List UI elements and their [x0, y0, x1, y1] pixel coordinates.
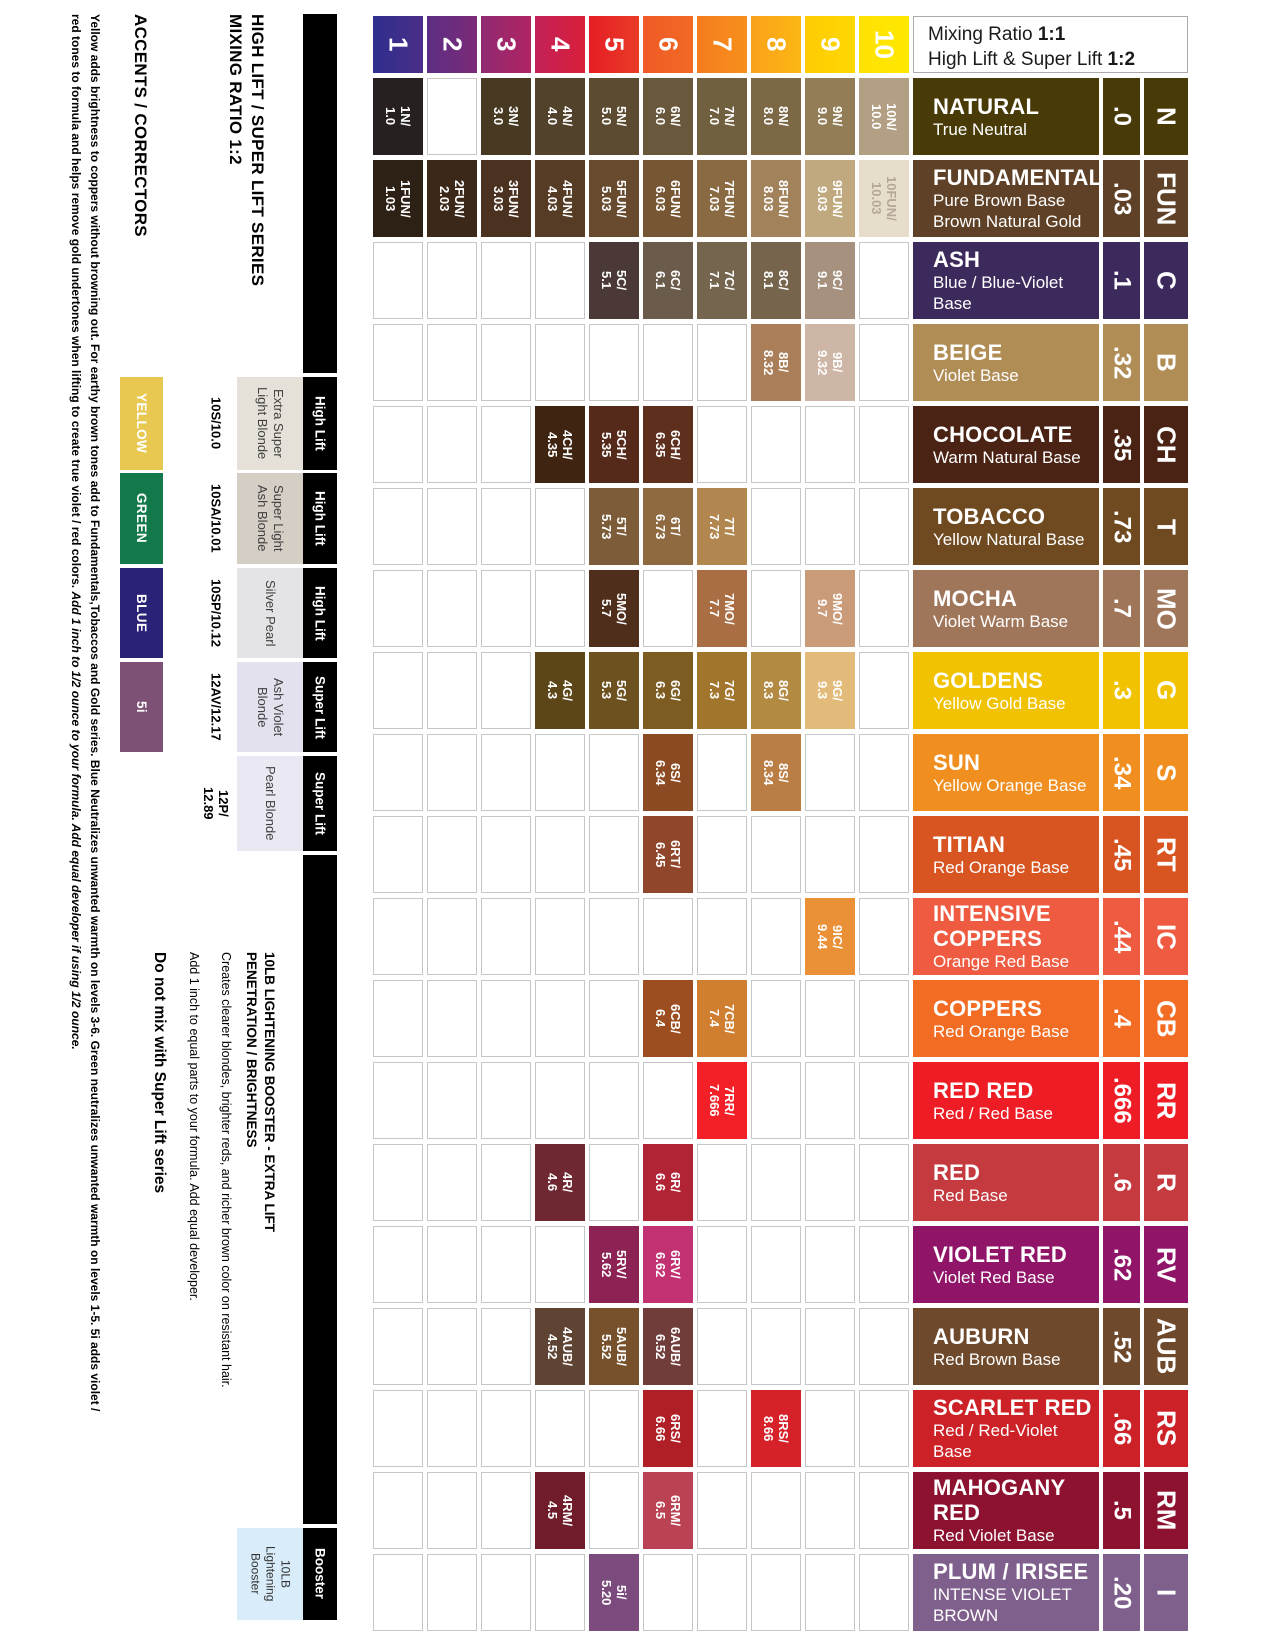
- empty-cell-s-4: [535, 734, 585, 811]
- level-header-8: 8: [751, 16, 801, 73]
- empty-cell-ch-7: [697, 406, 747, 483]
- family-letter-rv: RV: [1144, 1226, 1188, 1303]
- swatch-cell-4CH: 4CH/4.35: [535, 406, 585, 483]
- accent-swatch-5i: 5i: [120, 662, 163, 752]
- swatch-code-5T: 5T/5.73: [599, 514, 629, 539]
- empty-cell-rt-10: [859, 816, 909, 893]
- family-letter-text-i: I: [1151, 1589, 1182, 1596]
- level-header-10: 10: [859, 16, 909, 73]
- product-code-text-12P: 12P/12.89: [201, 787, 231, 820]
- empty-cell-ic-10: [859, 898, 909, 975]
- footnote-line-2: red tones to formula and helps remove go…: [66, 14, 85, 1639]
- empty-cell-rt-3: [481, 816, 531, 893]
- family-code-r: .6: [1103, 1144, 1140, 1221]
- swatch-code-10N: 10N/10.0: [869, 103, 899, 130]
- empty-cell-rt-2: [427, 816, 477, 893]
- family-code-text-fun: .03: [1108, 182, 1136, 215]
- family-letter-text-c: C: [1151, 271, 1182, 290]
- empty-cell-aub-7: [697, 1308, 747, 1385]
- swatch-cell-6AUB: 6AUB/6.52: [643, 1308, 693, 1385]
- swatch-code-4N: 4N/4.0: [545, 106, 575, 126]
- empty-cell-b-7: [697, 324, 747, 401]
- accent-label-5i: 5i: [134, 701, 149, 713]
- level-number-5: 5: [599, 37, 630, 51]
- swatch-code-6RM: 6RM/6.5: [653, 1495, 683, 1526]
- swatch-cell-6G: 6G/6.3: [643, 652, 693, 729]
- empty-cell-r-10: [859, 1144, 909, 1221]
- family-code-ic: .44: [1103, 898, 1140, 975]
- empty-cell-mo-1: [373, 570, 423, 647]
- family-letter-text-ch: CH: [1151, 426, 1182, 464]
- series-heading-line-2: MIXING RATIO 1:2: [224, 14, 246, 286]
- product-code-text-10SA1001: 10SA/10.01: [209, 484, 224, 553]
- product-name-10SA1001: Super LightAsh Blonde: [254, 485, 286, 552]
- empty-cell-rs-4: [535, 1390, 585, 1467]
- swatch-cell-7FUN: 7FUN/7.03: [697, 160, 747, 237]
- family-band-g: GOLDENSYellow Gold Base: [913, 652, 1099, 729]
- swatch-code-6T: 6T/6.73: [653, 514, 683, 539]
- empty-cell-r-9: [805, 1144, 855, 1221]
- product-name-10SP1012: Silver Pearl: [262, 580, 278, 646]
- empty-cell-r-7: [697, 1144, 747, 1221]
- family-letter-g: G: [1144, 652, 1188, 729]
- empty-cell-t-3: [481, 488, 531, 565]
- empty-cell-rm-3: [481, 1472, 531, 1549]
- empty-cell-b-3: [481, 324, 531, 401]
- booster-box-line-2: Lightening: [263, 1546, 278, 1601]
- empty-cell-rv-7: [697, 1226, 747, 1303]
- empty-cell-i-1: [373, 1554, 423, 1631]
- family-band-rm: MAHOGANY REDRed Violet Base: [913, 1472, 1099, 1549]
- swatch-cell-10FUN: 10FUN/10.03: [859, 160, 909, 237]
- family-code-rm: .5: [1103, 1472, 1140, 1549]
- high-lift-series-heading: HIGH LIFT / SUPER LIFT SERIES MIXING RAT…: [224, 14, 270, 344]
- lift-bar-super-lift-5: Super Lift: [303, 756, 337, 851]
- family-letter-text-aub: AUB: [1151, 1318, 1182, 1374]
- empty-cell-rv-2: [427, 1226, 477, 1303]
- family-code-rv: .62: [1103, 1226, 1140, 1303]
- swatch-code-6RS: 6RS/6.66: [653, 1414, 683, 1443]
- empty-cell-mo-8: [751, 570, 801, 647]
- family-letter-aub: AUB: [1144, 1308, 1188, 1385]
- family-band-cb: COPPERSRed Orange Base: [913, 980, 1099, 1057]
- empty-cell-i-6: [643, 1554, 693, 1631]
- family-letter-text-rv: RV: [1151, 1247, 1182, 1283]
- swatch-cell-6N: 6N/6.0: [643, 78, 693, 155]
- swatch-code-5N: 5N/5.0: [599, 106, 629, 126]
- empty-cell-b-2: [427, 324, 477, 401]
- family-code-c: .1: [1103, 242, 1140, 319]
- empty-cell-rr-5: [589, 1062, 639, 1139]
- family-code-text-cb: .4: [1108, 1008, 1136, 1028]
- empty-cell-ch-3: [481, 406, 531, 483]
- empty-cell-ic-2: [427, 898, 477, 975]
- level-number-4: 4: [545, 37, 576, 51]
- swatch-code-8C: 8C/8.1: [761, 270, 791, 290]
- level-number-8: 8: [761, 37, 792, 51]
- empty-cell-ic-6: [643, 898, 693, 975]
- swatch-code-8N: 8N/8.0: [761, 106, 791, 126]
- family-band-s: SUNYellow Orange Base: [913, 734, 1099, 811]
- family-letter-t: T: [1144, 488, 1188, 565]
- swatch-code-7RR: 7RR/7.666: [707, 1084, 737, 1117]
- family-letter-text-r: R: [1151, 1173, 1182, 1192]
- family-band-mo: MOCHAViolet Warm Base: [913, 570, 1099, 647]
- swatch-code-4AUB: 4AUB/4.52: [545, 1327, 575, 1366]
- empty-cell-rt-4: [535, 816, 585, 893]
- swatch-code-6FUN: 6FUN/6.03: [653, 180, 683, 218]
- family-code-text-rv: .62: [1108, 1248, 1136, 1281]
- swatch-cell-9C: 9C/9.1: [805, 242, 855, 319]
- family-code-fun: .03: [1103, 160, 1140, 237]
- empty-cell-cb-8: [751, 980, 801, 1057]
- swatch-code-9FUN: 9FUN/9.03: [815, 180, 845, 218]
- empty-cell-cb-5: [589, 980, 639, 1057]
- family-code-text-rm: .5: [1108, 1500, 1136, 1520]
- empty-cell-rr-4: [535, 1062, 585, 1139]
- level-number-1: 1: [383, 37, 414, 51]
- family-letter-n: N: [1144, 78, 1188, 155]
- empty-cell-ic-5: [589, 898, 639, 975]
- product-code-text-10S100: 10S/10.0: [209, 397, 224, 449]
- swatch-code-6AUB: 6AUB/6.52: [653, 1327, 683, 1366]
- swatch-code-6R: 6R/6.6: [653, 1172, 683, 1192]
- swatch-cell-1N: 1N/1.0: [373, 78, 423, 155]
- empty-cell-ch-1: [373, 406, 423, 483]
- swatch-cell-8B: 8B/8.32: [751, 324, 801, 401]
- swatch-code-8G: 8G/8.3: [761, 680, 791, 701]
- swatch-code-7FUN: 7FUN/7.03: [707, 180, 737, 218]
- family-letter-text-mo: MO: [1151, 588, 1182, 630]
- empty-cell-cb-10: [859, 980, 909, 1057]
- family-letter-text-cb: CB: [1151, 1000, 1182, 1038]
- swatch-code-6RT: 6RT/6.45: [653, 840, 683, 868]
- empty-cell-s-9: [805, 734, 855, 811]
- family-letter-i: I: [1144, 1554, 1188, 1631]
- empty-cell-mo-3: [481, 570, 531, 647]
- empty-cell-ic-3: [481, 898, 531, 975]
- family-code-text-rs: .66: [1108, 1412, 1136, 1445]
- family-code-text-c: .1: [1108, 270, 1136, 290]
- family-letter-text-rm: RM: [1151, 1490, 1182, 1530]
- swatch-cell-6R: 6R/6.6: [643, 1144, 693, 1221]
- swatch-cell-8N: 8N/8.0: [751, 78, 801, 155]
- family-letter-fun: FUN: [1144, 160, 1188, 237]
- empty-cell-rs-7: [697, 1390, 747, 1467]
- family-letter-ch: CH: [1144, 406, 1188, 483]
- level-header-1: 1: [373, 16, 423, 73]
- empty-cell-rv-1: [373, 1226, 423, 1303]
- swatch-cell-4AUB: 4AUB/4.52: [535, 1308, 585, 1385]
- empty-cell-cb-9: [805, 980, 855, 1057]
- empty-cell-rm-1: [373, 1472, 423, 1549]
- swatch-code-4CH: 4CH/4.35: [545, 430, 575, 460]
- family-band-n: NATURALTrue Neutral: [913, 78, 1099, 155]
- swatch-cell-4N: 4N/4.0: [535, 78, 585, 155]
- family-code-text-i: .20: [1108, 1576, 1136, 1609]
- product-name-12P: Pearl Blonde: [262, 766, 278, 840]
- family-code-aub: .52: [1103, 1308, 1140, 1385]
- lift-bar-booster-7: Booster: [303, 1528, 337, 1620]
- swatch-code-7N: 7N/7.0: [707, 106, 737, 126]
- swatch-cell-9MO: 9MO/9.7: [805, 570, 855, 647]
- swatch-code-2FUN: 2FUN/2.03: [437, 180, 467, 218]
- swatch-code-9N: 9N/9.0: [815, 106, 845, 126]
- swatch-code-3N: 3N/3.0: [491, 106, 521, 126]
- family-code-i: .20: [1103, 1554, 1140, 1631]
- family-code-text-rr: .666: [1108, 1077, 1136, 1124]
- swatch-cell-5C: 5C/5.1: [589, 242, 639, 319]
- swatch-cell-8G: 8G/8.3: [751, 652, 801, 729]
- swatch-cell-6C: 6C/6.1: [643, 242, 693, 319]
- empty-cell-ic-1: [373, 898, 423, 975]
- product-code-text-12AV1217: 12AV/12.17: [209, 673, 224, 741]
- family-code-rt: .45: [1103, 816, 1140, 893]
- empty-cell-rs-2: [427, 1390, 477, 1467]
- product-label-12P: Pearl Blonde: [237, 756, 303, 851]
- family-letter-text-s: S: [1151, 764, 1182, 781]
- empty-cell-c-2: [427, 242, 477, 319]
- empty-cell-rv-8: [751, 1226, 801, 1303]
- family-letter-cb: CB: [1144, 980, 1188, 1057]
- accent-swatch-blue: BLUE: [120, 568, 163, 658]
- swatch-code-7MO: 7MO/7.7: [707, 593, 737, 625]
- empty-cell-ch-9: [805, 406, 855, 483]
- swatch-code-1FUN: 1FUN/1.03: [383, 180, 413, 218]
- footnote-line-1: Yellow adds brightness to coppers withou…: [85, 14, 104, 1639]
- level-header-9: 9: [805, 16, 855, 73]
- family-letter-text-ic: IC: [1151, 924, 1182, 950]
- empty-cell-cb-2: [427, 980, 477, 1057]
- family-code-text-b: .32: [1108, 346, 1136, 379]
- empty-cell-ic-4: [535, 898, 585, 975]
- product-label-12AV1217: Ash VioletBlonde: [237, 662, 303, 752]
- swatch-code-1N: 1N/1.0: [383, 106, 413, 126]
- lift-bar-blank-0: [303, 14, 337, 373]
- empty-cell-aub-1: [373, 1308, 423, 1385]
- accents-footnote: Yellow adds brightness to coppers withou…: [66, 14, 110, 1639]
- empty-cell-rr-6: [643, 1062, 693, 1139]
- empty-cell-aub-9: [805, 1308, 855, 1385]
- lift-bar-label-2: High Lift: [313, 491, 328, 546]
- family-code-b: .32: [1103, 324, 1140, 401]
- empty-cell-ch-8: [751, 406, 801, 483]
- family-letter-ic: IC: [1144, 898, 1188, 975]
- empty-cell-g-10: [859, 652, 909, 729]
- empty-cell-rt-1: [373, 816, 423, 893]
- swatch-cell-7C: 7C/7.1: [697, 242, 747, 319]
- family-code-text-t: .73: [1108, 510, 1136, 543]
- family-letter-text-rt: RT: [1151, 837, 1182, 872]
- level-number-9: 9: [815, 37, 846, 51]
- family-band-ic: INTENSIVECOPPERSOrange Red Base: [913, 898, 1099, 975]
- family-letter-text-rs: RS: [1151, 1410, 1182, 1446]
- empty-cell-rs-10: [859, 1390, 909, 1467]
- empty-cell-rs-3: [481, 1390, 531, 1467]
- empty-cell-rv-10: [859, 1226, 909, 1303]
- swatch-code-9B: 9B/9.32: [815, 350, 845, 375]
- swatch-code-5FUN: 5FUN/5.03: [599, 180, 629, 218]
- swatch-code-9C: 9C/9.1: [815, 270, 845, 290]
- empty-cell-i-2: [427, 1554, 477, 1631]
- empty-cell-rt-8: [751, 816, 801, 893]
- empty-cell-mo-2: [427, 570, 477, 647]
- empty-cell-s-7: [697, 734, 747, 811]
- empty-cell-c-10: [859, 242, 909, 319]
- empty-cell-aub-3: [481, 1308, 531, 1385]
- swatch-cell-3FUN: 3FUN/3.03: [481, 160, 531, 237]
- lift-bar-label-1: High Lift: [313, 396, 328, 451]
- empty-cell-r-8: [751, 1144, 801, 1221]
- swatch-code-8B: 8B/8.32: [761, 350, 791, 375]
- swatch-cell-4FUN: 4FUN/4.03: [535, 160, 585, 237]
- empty-cell-rv-3: [481, 1226, 531, 1303]
- swatch-code-6N: 6N/6.0: [653, 106, 683, 126]
- swatch-code-5AUB: 5AUB/5.52: [599, 1327, 629, 1366]
- swatch-code-7T: 7T/7.73: [707, 514, 737, 539]
- empty-cell-g-3: [481, 652, 531, 729]
- swatch-cell-2FUN: 2FUN/2.03: [427, 160, 477, 237]
- swatch-cell-10N: 10N/10.0: [859, 78, 909, 155]
- swatch-cell-6CH: 6CH/6.35: [643, 406, 693, 483]
- empty-cell-s-3: [481, 734, 531, 811]
- family-code-text-r: .6: [1108, 1172, 1136, 1192]
- empty-cell-b-6: [643, 324, 693, 401]
- mixing-ratio-line-2: High Lift & Super Lift 1:2: [928, 47, 1187, 72]
- swatch-cell-6CB: 6CB/6.4: [643, 980, 693, 1057]
- family-code-text-s: .34: [1108, 756, 1136, 789]
- empty-cell-mo-10: [859, 570, 909, 647]
- empty-cell-s-10: [859, 734, 909, 811]
- swatch-code-4FUN: 4FUN/4.03: [545, 180, 575, 218]
- lightening-booster-box: 10LB Lightening Booster: [237, 1528, 303, 1620]
- empty-cell-i-8: [751, 1554, 801, 1631]
- empty-cell-rm-2: [427, 1472, 477, 1549]
- family-code-text-ch: .35: [1108, 428, 1136, 461]
- family-band-fun: FUNDAMENTALSPure Brown BaseBrown Natural…: [913, 160, 1099, 237]
- accents-correctors-heading: ACCENTS / CORRECTORS: [130, 14, 156, 334]
- lift-bar-label-4: Super Lift: [313, 676, 328, 739]
- empty-cell-rt-9: [805, 816, 855, 893]
- swatch-cell-5RV: 5RV/5.62: [589, 1226, 639, 1303]
- empty-cell-t-2: [427, 488, 477, 565]
- empty-cell-b-5: [589, 324, 639, 401]
- empty-cell-rv-9: [805, 1226, 855, 1303]
- empty-cell-c-3: [481, 242, 531, 319]
- swatch-code-6CH: 6CH/6.35: [653, 430, 683, 460]
- empty-cell-t-10: [859, 488, 909, 565]
- empty-cell-n-2: [427, 78, 477, 155]
- swatch-code-6G: 6G/6.3: [653, 680, 683, 701]
- family-code-t: .73: [1103, 488, 1140, 565]
- empty-cell-s-1: [373, 734, 423, 811]
- family-letter-rt: RT: [1144, 816, 1188, 893]
- family-band-c: ASHBlue / Blue-Violet Base: [913, 242, 1099, 319]
- empty-cell-cb-4: [535, 980, 585, 1057]
- family-code-text-mo: .7: [1108, 598, 1136, 618]
- empty-cell-rr-3: [481, 1062, 531, 1139]
- empty-cell-r-2: [427, 1144, 477, 1221]
- empty-cell-aub-10: [859, 1308, 909, 1385]
- swatch-cell-9N: 9N/9.0: [805, 78, 855, 155]
- swatch-code-6CB: 6CB/6.4: [653, 1004, 683, 1034]
- swatch-cell-5MO: 5MO/5.7: [589, 570, 639, 647]
- product-label-10SP1012: Silver Pearl: [237, 568, 303, 658]
- lift-bar-blank-6: [303, 855, 337, 1524]
- swatch-cell-3N: 3N/3.0: [481, 78, 531, 155]
- family-code-text-g: .3: [1108, 680, 1136, 700]
- family-letter-text-t: T: [1151, 519, 1182, 535]
- swatch-code-9MO: 9MO/9.7: [815, 593, 845, 625]
- family-band-i: PLUM / IRISEEINTENSE VIOLETBROWN: [913, 1554, 1099, 1631]
- family-band-ch: CHOCOLATEWarm Natural Base: [913, 406, 1099, 483]
- swatch-cell-8S: 8S/8.34: [751, 734, 801, 811]
- swatch-cell-6RM: 6RM/6.5: [643, 1472, 693, 1549]
- empty-cell-rr-10: [859, 1062, 909, 1139]
- empty-cell-g-1: [373, 652, 423, 729]
- empty-cell-ic-7: [697, 898, 747, 975]
- swatch-code-6C: 6C/6.1: [653, 270, 683, 290]
- family-code-s: .34: [1103, 734, 1140, 811]
- swatch-code-3FUN: 3FUN/3.03: [491, 180, 521, 218]
- info-warning: Do not mix with Super Lift series: [150, 952, 169, 1644]
- empty-cell-mo-4: [535, 570, 585, 647]
- product-code-10SP1012: 10SP/10.12: [197, 568, 235, 658]
- empty-cell-c-4: [535, 242, 585, 319]
- lift-bar-high-lift-1: High Lift: [303, 377, 337, 470]
- empty-cell-mo-6: [643, 570, 693, 647]
- family-code-n: .0: [1103, 78, 1140, 155]
- empty-cell-t-9: [805, 488, 855, 565]
- swatch-cell-8RS: 8RS/8.66: [751, 1390, 801, 1467]
- series-heading-line-1: HIGH LIFT / SUPER LIFT SERIES: [246, 14, 268, 286]
- product-name-12AV1217: Ash VioletBlonde: [254, 678, 286, 736]
- family-code-text-aub: .52: [1108, 1330, 1136, 1363]
- family-band-t: TOBACCOYellow Natural Base: [913, 488, 1099, 565]
- family-letter-rr: RR: [1144, 1062, 1188, 1139]
- empty-cell-ch-2: [427, 406, 477, 483]
- family-letter-r: R: [1144, 1144, 1188, 1221]
- mixing-ratio-note: Mixing Ratio 1:1 High Lift & Super Lift …: [913, 16, 1188, 73]
- family-code-rs: .66: [1103, 1390, 1140, 1467]
- lift-bar-label-5: Super Lift: [313, 772, 328, 835]
- swatch-code-4R: 4R/4.6: [545, 1172, 575, 1192]
- swatch-cell-7CB: 7CB/7.4: [697, 980, 747, 1057]
- family-band-rv: VIOLET REDViolet Red Base: [913, 1226, 1099, 1303]
- empty-cell-cb-1: [373, 980, 423, 1057]
- swatch-cell-5AUB: 5AUB/5.52: [589, 1308, 639, 1385]
- swatch-cell-7T: 7T/7.73: [697, 488, 747, 565]
- empty-cell-c-1: [373, 242, 423, 319]
- level-header-4: 4: [535, 16, 585, 73]
- level-number-3: 3: [491, 37, 522, 51]
- empty-cell-r-1: [373, 1144, 423, 1221]
- lift-bar-label-7: Booster: [313, 1548, 328, 1599]
- empty-cell-rr-8: [751, 1062, 801, 1139]
- empty-cell-rt-7: [697, 816, 747, 893]
- level-number-10: 10: [869, 30, 900, 59]
- swatch-code-8S: 8S/8.34: [761, 760, 791, 785]
- empty-cell-i-9: [805, 1554, 855, 1631]
- swatch-cell-5i: 5i/5.20: [589, 1554, 639, 1631]
- family-letter-s: S: [1144, 734, 1188, 811]
- family-code-mo: .7: [1103, 570, 1140, 647]
- level-number-6: 6: [653, 37, 684, 51]
- empty-cell-i-10: [859, 1554, 909, 1631]
- swatch-cell-9G: 9G/9.3: [805, 652, 855, 729]
- swatch-code-7G: 7G/7.3: [707, 680, 737, 701]
- color-grid: Mixing Ratio 1:1 High Lift & Super Lift …: [373, 16, 1188, 1631]
